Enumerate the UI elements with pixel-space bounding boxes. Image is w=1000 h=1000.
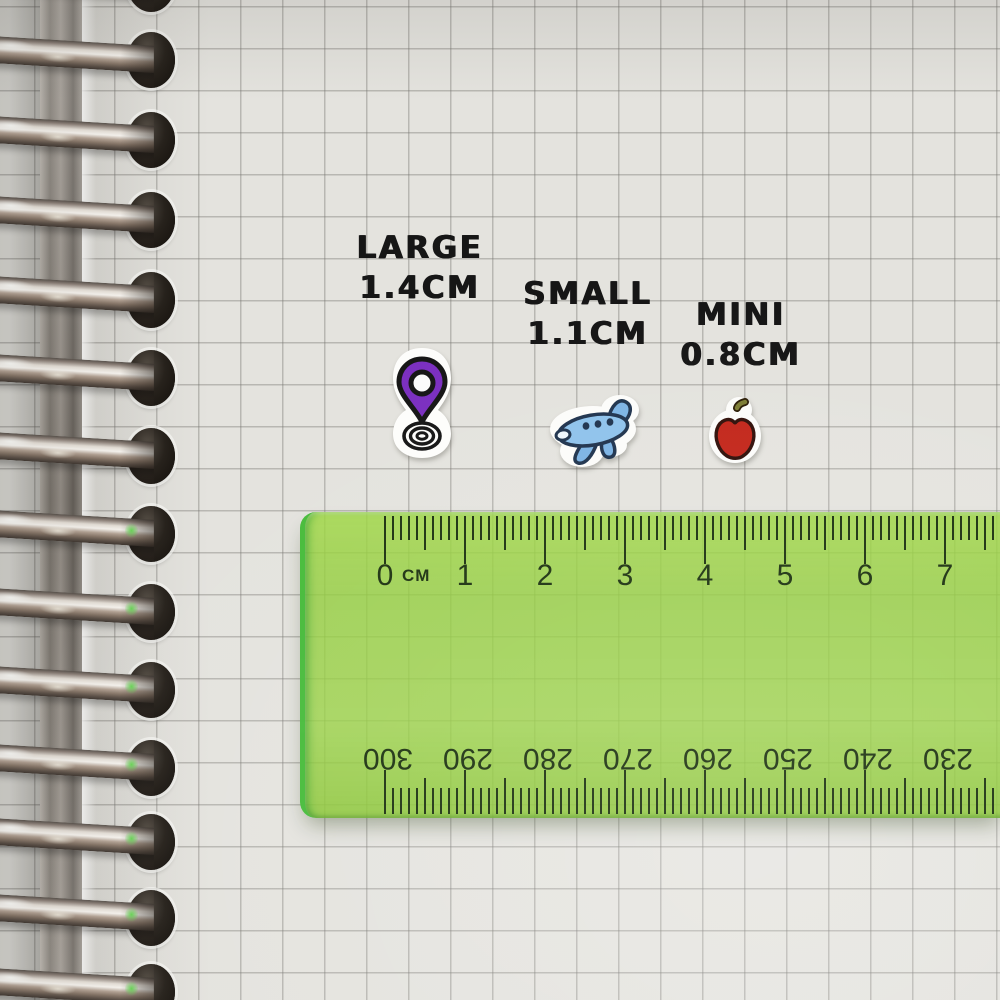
ruler-tick (584, 778, 587, 814)
ruler-tick (840, 788, 843, 814)
ruler-tick (816, 516, 819, 540)
ruler-number-bottom: 290 (443, 741, 493, 775)
ruler-number-top: 4 (697, 559, 714, 593)
ruler-number-top: 6 (857, 559, 874, 593)
ruler-tick (976, 788, 979, 814)
ruler-number-top: 5 (777, 559, 794, 593)
ruler-tick (456, 788, 459, 814)
ruler-tick (384, 516, 387, 564)
ruler-tick (536, 788, 539, 814)
ruler-tick (672, 516, 675, 540)
ruler-tick (664, 778, 667, 814)
ruler-tick (808, 788, 811, 814)
ruler-tick (512, 516, 515, 540)
ruler-number-top: 1 (457, 559, 474, 593)
ruler-tick (472, 516, 475, 540)
ruler-tick (736, 788, 739, 814)
ruler-number-bottom: 240 (843, 741, 893, 775)
ruler-tick (688, 788, 691, 814)
ruler-tick (672, 788, 675, 814)
ruler-tick (648, 516, 651, 540)
ruler-tick (512, 788, 515, 814)
ruler-tick (600, 516, 603, 540)
ruler-tick (720, 788, 723, 814)
ruler-tick (688, 516, 691, 540)
ruler-tick (680, 788, 683, 814)
ruler-tick (888, 788, 891, 814)
ruler-tick (464, 516, 467, 564)
ruler-tick (864, 770, 867, 814)
ruler-tick (392, 788, 395, 814)
ruler-tick (744, 516, 747, 550)
ruler-tick (528, 788, 531, 814)
ruler-number-bottom: 280 (523, 741, 573, 775)
ruler-tick (712, 516, 715, 540)
ruler-number-bottom: 270 (603, 741, 653, 775)
ruler-tick (696, 788, 699, 814)
ruler-tick (408, 516, 411, 540)
ruler-tick (440, 788, 443, 814)
ruler-tick (872, 788, 875, 814)
ruler-tick (552, 516, 555, 540)
ruler-tick (656, 516, 659, 540)
ruler-tick (784, 516, 787, 564)
ruler-tick (608, 516, 611, 540)
ruler-tick (968, 516, 971, 540)
apple-sticker-icon (708, 396, 763, 464)
ruler-tick (560, 516, 563, 540)
ruler-tick (528, 516, 531, 540)
ruler-tick (520, 788, 523, 814)
ruler-tick (504, 516, 507, 550)
ruler-tick (768, 516, 771, 540)
ruler-tick (592, 788, 595, 814)
ruler-tick (488, 788, 491, 814)
ruler-tick (656, 788, 659, 814)
ruler-tick (968, 788, 971, 814)
ruler-tick (952, 788, 955, 814)
ruler-tick (904, 778, 907, 814)
label-large-name: LARGE (300, 228, 540, 268)
ruler-tick (776, 516, 779, 540)
ruler-tick (832, 516, 835, 540)
ruler-tick (648, 788, 651, 814)
ruler-tick (592, 516, 595, 540)
ruler-tick (872, 516, 875, 540)
ruler-tick (896, 516, 899, 540)
label-mini: MINI 0.8CM (621, 295, 861, 375)
ruler-tick (984, 516, 987, 550)
ruler: CM 01234567300290280270260250240230 (300, 512, 1000, 818)
ruler-tick (520, 516, 523, 540)
ruler-tick (800, 788, 803, 814)
grid-paper-page (82, 0, 1000, 1000)
ruler-unit-label: CM (402, 566, 430, 586)
ruler-number-top: 7 (937, 559, 954, 593)
ruler-tick (544, 770, 547, 814)
ruler-tick (992, 788, 995, 814)
ruler-number-top: 3 (617, 559, 634, 593)
ruler-tick (616, 516, 619, 540)
ruler-tick (832, 788, 835, 814)
ruler-tick (904, 516, 907, 550)
ruler-tick (464, 770, 467, 814)
ruler-tick (496, 788, 499, 814)
ruler-tick (432, 516, 435, 540)
ruler-tick (960, 788, 963, 814)
ruler-tick (600, 788, 603, 814)
ruler-tick (576, 788, 579, 814)
ruler-tick (824, 516, 827, 550)
ruler-tick (624, 770, 627, 814)
ruler-tick (984, 778, 987, 814)
ruler-tick (928, 516, 931, 540)
label-mini-size: 0.8CM (621, 335, 861, 375)
ruler-tick (912, 788, 915, 814)
ruler-tick (880, 516, 883, 540)
ruler-tick (920, 516, 923, 540)
ruler-number-bottom: 300 (363, 741, 413, 775)
ruler-tick (864, 516, 867, 564)
ruler-tick (448, 788, 451, 814)
ruler-tick (680, 516, 683, 540)
ruler-tick (712, 788, 715, 814)
ruler-tick (912, 516, 915, 540)
ruler-tick (744, 778, 747, 814)
ruler-tick (448, 516, 451, 540)
ruler-tick (504, 778, 507, 814)
ruler-tick (944, 770, 947, 814)
ruler-tick (488, 516, 491, 540)
ruler-tick (568, 788, 571, 814)
ruler-tick (752, 516, 755, 540)
ruler-tick (704, 770, 707, 814)
location-pin-sticker-icon (388, 345, 456, 462)
ruler-tick (408, 788, 411, 814)
ruler-tick (848, 516, 851, 540)
ruler-tick (768, 788, 771, 814)
ruler-tick (608, 788, 611, 814)
ruler-tick (928, 788, 931, 814)
ruler-tick (792, 516, 795, 540)
ruler-tick (696, 516, 699, 540)
ruler-tick (432, 788, 435, 814)
ruler-tick (728, 788, 731, 814)
ruler-tick (544, 516, 547, 564)
ruler-tick (424, 516, 427, 550)
ruler-tick (896, 788, 899, 814)
ruler-tick (992, 516, 995, 540)
ruler-tick (480, 516, 483, 540)
ruler-tick (880, 788, 883, 814)
ruler-tick (496, 516, 499, 540)
ruler-tick (384, 770, 387, 814)
ruler-tick (400, 516, 403, 540)
ruler-number-bottom: 260 (683, 741, 733, 775)
ruler-tick (856, 516, 859, 540)
ruler-tick (944, 516, 947, 564)
ruler-number-top: 0 (377, 559, 394, 593)
ruler-tick (640, 788, 643, 814)
ruler-tick (568, 516, 571, 540)
ruler-tick (840, 516, 843, 540)
label-mini-name: MINI (621, 295, 861, 335)
ruler-tick (440, 516, 443, 540)
ruler-tick (416, 516, 419, 540)
ruler-tick (736, 516, 739, 540)
ruler-tick (816, 788, 819, 814)
ruler-tick (640, 516, 643, 540)
ruler-tick (760, 788, 763, 814)
ruler-tick (392, 516, 395, 540)
ruler-tick (400, 788, 403, 814)
ruler-tick (848, 788, 851, 814)
ruler-tick (808, 516, 811, 540)
ruler-tick (976, 516, 979, 540)
ruler-tick (792, 788, 795, 814)
ruler-tick (664, 516, 667, 550)
ruler-tick (704, 516, 707, 564)
ruler-tick (784, 770, 787, 814)
ruler-number-bottom: 250 (763, 741, 813, 775)
ruler-tick (552, 788, 555, 814)
ruler-tick (936, 788, 939, 814)
ruler-tick (888, 516, 891, 540)
ruler-tick (584, 516, 587, 550)
ruler-tick (576, 516, 579, 540)
ruler-tick (560, 788, 563, 814)
ruler-tick (800, 516, 803, 540)
ruler-tick (472, 788, 475, 814)
ruler-tick (936, 516, 939, 540)
ruler-tick (424, 778, 427, 814)
ruler-tick (720, 516, 723, 540)
ruler-tick (960, 516, 963, 540)
ruler-tick (416, 788, 419, 814)
ruler-tick (616, 788, 619, 814)
airplane-sticker-icon (548, 393, 644, 469)
ruler-tick (456, 516, 459, 540)
ruler-tick (920, 788, 923, 814)
ruler-tick (752, 788, 755, 814)
ruler-tick (776, 788, 779, 814)
ruler-tick (624, 516, 627, 564)
ruler-tick (632, 516, 635, 540)
ruler-tick (728, 516, 731, 540)
ruler-tick (632, 788, 635, 814)
ruler-tick (536, 516, 539, 540)
notebook-photo: LARGE 1.4CM SMALL 1.1CM MINI 0.8CM (0, 0, 1000, 1000)
ruler-tick (952, 516, 955, 540)
ruler-number-bottom: 230 (923, 741, 973, 775)
ruler-tick (824, 778, 827, 814)
ruler-tick (760, 516, 763, 540)
ruler-tick (480, 788, 483, 814)
ruler-number-top: 2 (537, 559, 554, 593)
ruler-tick (856, 788, 859, 814)
